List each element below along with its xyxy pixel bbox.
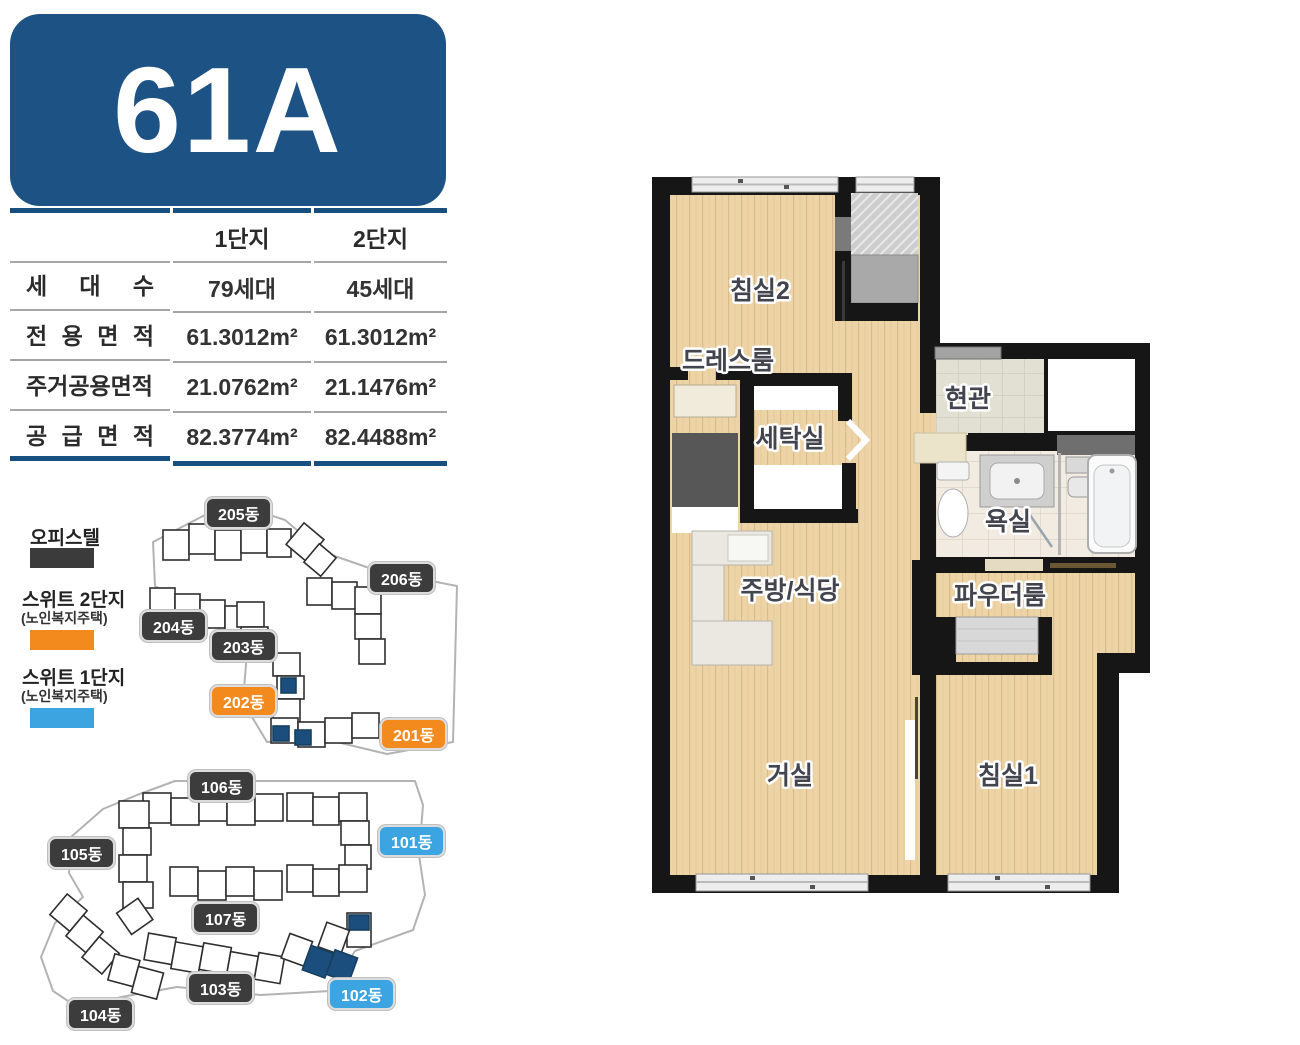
- bedroom1-door-gap: [905, 720, 915, 860]
- spec-row-exclusive-area-c2: 61.3012m²: [314, 313, 447, 363]
- spec-row-supply-area-c2: 82.4488m²: [314, 413, 447, 466]
- highlighted-unit: [349, 915, 369, 930]
- spec-row-households-c1: 79세대: [173, 263, 311, 313]
- room-label-powder-room: 파우더룸: [954, 582, 1046, 610]
- highlighted-unit: [273, 726, 289, 741]
- badge-202: 202동: [210, 685, 277, 717]
- closet-floor: [672, 507, 738, 533]
- spec-row-households-label: 세 대 수: [10, 263, 170, 311]
- wardrobe: [672, 433, 738, 507]
- spec-row-common-area-label: 주거공용면적: [10, 363, 170, 411]
- balcony-hatch: [851, 193, 918, 255]
- badge-106: 106동: [188, 770, 255, 802]
- bedroom1-door-leaf: [915, 697, 918, 779]
- badge-201: 201동: [380, 718, 447, 750]
- room-label-kitchen: 주방/식당: [741, 577, 840, 605]
- spec-row-households-c2: 45세대: [314, 263, 447, 313]
- entrance-mat: [914, 433, 966, 463]
- spec-row-exclusive-area-c1: 61.3012m²: [173, 313, 311, 363]
- site-map-complex1: 106동 101동 105동 107동 103동 102동 104동: [25, 765, 460, 1045]
- legend-officetel-label: 오피스텔: [30, 523, 100, 550]
- room-label-bedroom1: 침실1: [978, 762, 1038, 790]
- dressroom-cabinet: [674, 385, 736, 417]
- badge-203: 203동: [210, 630, 277, 662]
- room-label-laundry: 세탁실: [755, 425, 824, 453]
- spec-col-complex1: 1단지: [173, 208, 311, 263]
- spec-table: 1단지 2단지 세 대 수 79세대 45세대 전 용 면 적 61.3012m…: [10, 208, 447, 466]
- badge-206: 206동: [368, 562, 435, 594]
- site-map-complex2: 205동 206동 204동 203동 202동 201동: [135, 490, 460, 770]
- bathroom-threshold: [985, 559, 1043, 571]
- balcony-floor: [851, 255, 918, 303]
- spec-row-supply-area-label: 공 급 면 적: [10, 413, 170, 461]
- badge-101: 101동: [378, 825, 445, 857]
- kitchen-sink: [728, 535, 768, 561]
- floor-plan-drawing: 침실2 드레스룸 세탁실 현관 욕실 주방/식당 파우더룸 거실 침실1: [650, 175, 1165, 900]
- badge-105: 105동: [48, 837, 115, 869]
- kitchen-counter: [692, 621, 772, 665]
- legend-suite1-swatch: [30, 708, 94, 728]
- unit-type-title: 61A: [113, 40, 343, 180]
- door-track: [1050, 563, 1116, 568]
- badge-107: 107동: [192, 902, 259, 934]
- building-cluster-105: [117, 801, 153, 934]
- entry-closet-room: [1048, 359, 1135, 431]
- highlighted-unit: [295, 730, 311, 745]
- building-cluster-101: [287, 793, 371, 896]
- entry-passage: [905, 413, 936, 435]
- powder-closet: [956, 617, 1038, 654]
- legend-officetel-swatch: [30, 548, 94, 568]
- badge-204: 204동: [140, 610, 207, 642]
- room-label-entrance: 현관: [945, 385, 991, 413]
- laundry-lower: [754, 465, 846, 509]
- utility-box: [835, 217, 851, 251]
- laundry-upper: [754, 386, 846, 410]
- spec-row-exclusive-area-label: 전 용 면 적: [10, 313, 170, 361]
- building-cluster-201: [271, 713, 379, 747]
- legend-suite2-swatch: [30, 630, 94, 650]
- bath-partition: [1058, 453, 1061, 555]
- badge-205: 205동: [205, 497, 272, 529]
- badge-104: 104동: [67, 998, 134, 1030]
- legend-suite2-sublabel: (노인복지주택): [21, 608, 108, 628]
- vanity-drain: [1014, 478, 1020, 484]
- room-label-living-room: 거실: [767, 762, 813, 790]
- toilet-bowl: [938, 489, 968, 537]
- building-cluster-205: [163, 523, 336, 576]
- unit-type-header: 61A: [10, 14, 446, 206]
- legend-suite1-sublabel: (노인복지주택): [21, 686, 108, 706]
- room-label-bedroom2: 침실2: [730, 277, 790, 305]
- building-cluster-107: [170, 867, 282, 900]
- bathtub-inner: [1094, 465, 1130, 547]
- spec-row-supply-area-c1: 82.3774m²: [173, 413, 311, 466]
- highlighted-unit: [281, 678, 296, 693]
- toilet-tank: [937, 462, 969, 480]
- room-label-dressroom: 드레스룸: [682, 347, 774, 375]
- entrance-door: [935, 347, 1001, 359]
- spec-row-common-area-c1: 21.0762m²: [173, 363, 311, 413]
- spec-col-complex2: 2단지: [314, 208, 447, 263]
- building-cluster-202: [273, 653, 304, 722]
- shoe-cabinet: [1057, 435, 1135, 455]
- room-label-bathroom: 욕실: [985, 508, 1031, 536]
- floor-plan: 침실2 드레스룸 세탁실 현관 욕실 주방/식당 파우더룸 거실 침실1: [650, 175, 1165, 900]
- brochure-page: 61A 1단지 2단지 세 대 수 79세대 45세대 전 용 면 적 61.3…: [0, 0, 1300, 1045]
- bedroom2-door: [842, 261, 845, 321]
- spec-row-common-area-c2: 21.1476m²: [314, 363, 447, 413]
- badge-102: 102동: [328, 978, 395, 1010]
- bathtub-drain: [1110, 469, 1115, 474]
- spec-col-empty: [10, 208, 170, 263]
- badge-103: 103동: [187, 972, 254, 1004]
